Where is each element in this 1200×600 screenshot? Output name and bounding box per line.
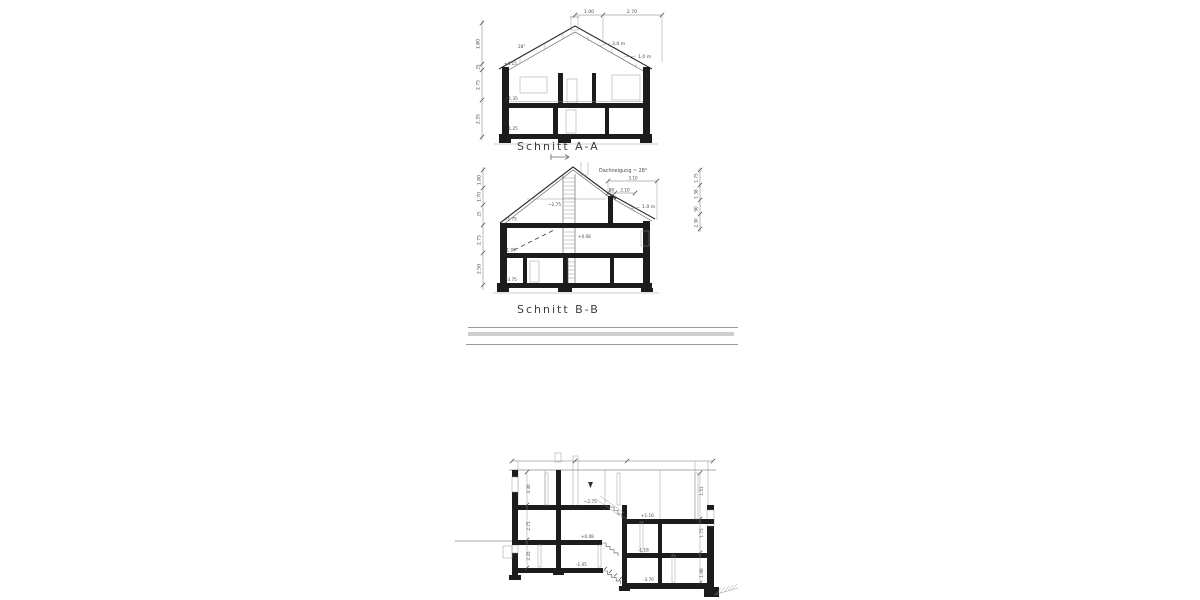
aa-dim-left-2: 25 xyxy=(476,64,481,70)
split-level-section-drawing: ~2.75 +1.16 +0.08 -1.18 -1.05 -3.70 3.30… xyxy=(440,440,760,600)
bb-dim-right-4: 2.30 xyxy=(694,218,699,228)
aa-dim-top-1: 1.00 xyxy=(584,9,594,15)
aa-roof-angle-label: 28° xyxy=(518,44,525,49)
bb-dim-right-3: 90 xyxy=(694,206,699,212)
aa-level-eaves: +4.15 xyxy=(504,61,517,66)
aa-dim-left-4: 2.35 xyxy=(476,114,482,124)
bb-pitch-note: Dachneigung ~ 28° xyxy=(599,168,647,174)
aa-dim-left-3: 2.75 xyxy=(476,80,482,90)
bb-dim-left-4: 2.75 xyxy=(477,235,483,245)
aa-roof-lower-label: 1.0 m xyxy=(638,54,652,60)
bb-sub-dim-1: 80 xyxy=(609,188,615,193)
schnitt-bb-caption: Schnitt B-B xyxy=(517,303,600,316)
bb-dim-left-3: 25 xyxy=(477,211,482,217)
bb-dim-left-2: 1.70 xyxy=(477,192,483,202)
c-level-top-left: ~2.75 xyxy=(584,499,597,504)
extent-arrow-icon xyxy=(548,152,574,162)
bb-sub-dim-2: 2.10 xyxy=(620,188,630,193)
page-fold-band xyxy=(468,332,734,336)
c-dim-right-2: 1.75 xyxy=(699,528,704,538)
bb-level-stair-landing: +0.08 xyxy=(578,234,591,239)
bb-level-attic-floor: +1.75 xyxy=(504,217,517,222)
c-dim-left-2: 2.75 xyxy=(526,521,531,531)
c-level-mid-left: +0.08 xyxy=(581,534,594,539)
scanned-drawing-page: 1.80 25 2.75 2.35 1.00 2.70 28° 3.0 m 1.… xyxy=(0,0,1200,600)
bb-roof-label: 1.0 m xyxy=(642,204,656,210)
c-level-bottom-right: -3.70 xyxy=(643,577,654,582)
aa-dim-left-1: 1.80 xyxy=(476,39,482,49)
bb-dim-right-2: 1.38 xyxy=(694,189,699,199)
bb-level-ground-floor: -1.00 xyxy=(505,248,516,253)
c-level-lower-left: -1.05 xyxy=(576,562,587,567)
aa-level-upper-floor: +1.35 xyxy=(505,96,518,101)
c-dim-left-3: 2.35 xyxy=(526,551,531,561)
page-fold-line-top xyxy=(468,327,738,328)
bb-level-basement: -3.75 xyxy=(506,277,517,282)
bb-level-attic-clearance: ~2.75 xyxy=(548,202,561,207)
c-dim-left-1: 3.30 xyxy=(526,484,531,494)
aa-level-basement: -1.25 xyxy=(507,126,518,131)
c-dim-right-1: 1.51 xyxy=(699,486,704,496)
bb-dim-right-1: 1.75 xyxy=(694,173,699,183)
schnitt-aa-drawing: 1.80 25 2.75 2.35 1.00 2.70 28° 3.0 m 1.… xyxy=(440,0,740,162)
aa-roof-upper-label: 3.0 m xyxy=(612,41,626,47)
bb-dim-left-1: 1.80 xyxy=(477,175,483,185)
schnitt-bb-drawing: 1.80 1.70 25 2.75 2.50 ~2.75 Dachneigung… xyxy=(440,162,740,320)
c-dim-right-3: 1.90 xyxy=(699,568,704,578)
c-level-mid-right: -1.18 xyxy=(638,548,649,553)
bb-dim-top: 3.10 xyxy=(628,176,638,181)
page-fold-line-bottom xyxy=(466,344,738,345)
c-level-upper-right: +1.16 xyxy=(641,513,654,518)
bb-dim-left-5: 2.50 xyxy=(477,264,483,274)
aa-dim-top-2: 2.70 xyxy=(627,9,637,15)
